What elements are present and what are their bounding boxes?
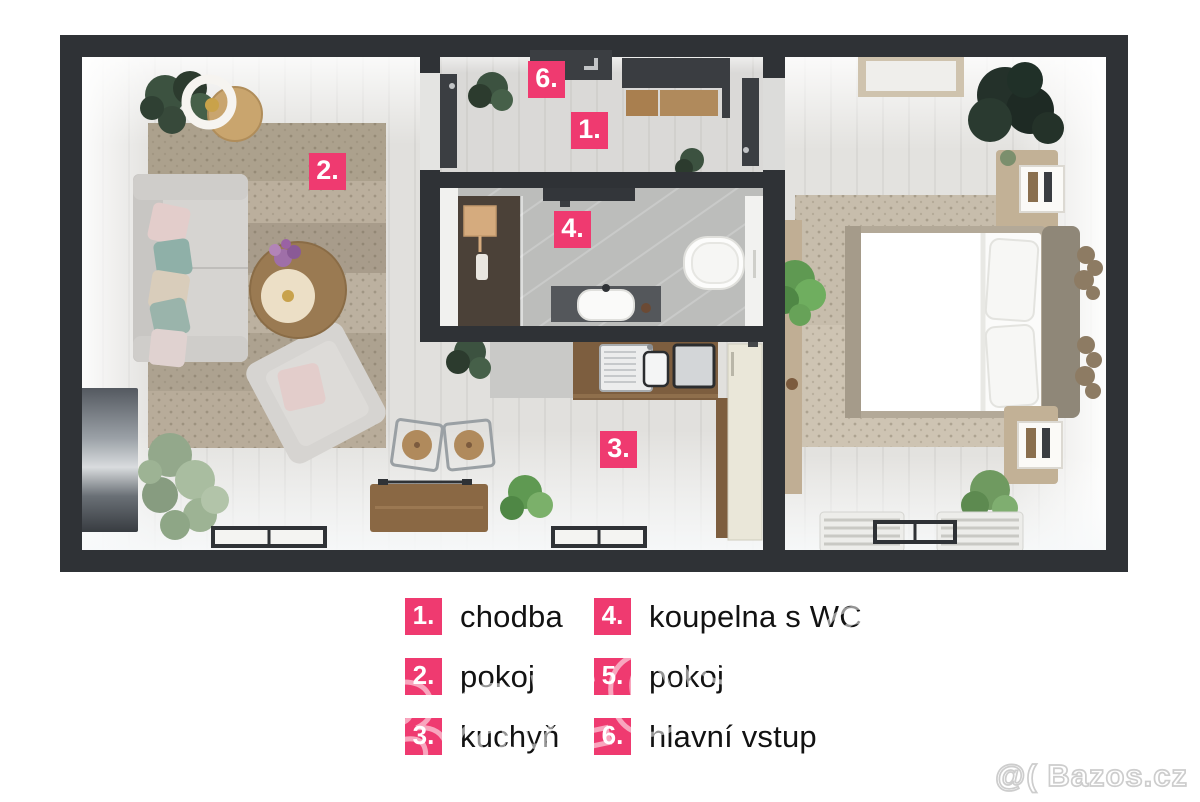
legend-item-koupelna: 4. koupelna s WC bbox=[594, 598, 862, 635]
doorway bbox=[763, 78, 785, 170]
legend-number-badge: 3. bbox=[405, 718, 442, 755]
legend-item-chodba: 1. chodba bbox=[405, 598, 563, 635]
legend-label: pokoj bbox=[649, 659, 724, 695]
ceiling-light bbox=[858, 55, 964, 97]
bathroom-sink bbox=[551, 284, 661, 322]
radiator bbox=[937, 512, 1023, 552]
window bbox=[213, 528, 325, 546]
legend-column-2: 4. koupelna s WC 5. pokoj 6. hlavní vstu… bbox=[594, 598, 862, 755]
watermark-logo: @( Bazos.cz bbox=[995, 758, 1188, 794]
room-marker-bathroom: 4. bbox=[554, 211, 591, 248]
sideboard bbox=[370, 479, 488, 532]
doorway bbox=[420, 73, 440, 170]
legend-number-badge: 4. bbox=[594, 598, 631, 635]
kitchen-counter bbox=[490, 342, 718, 400]
room-marker-kitchen: 3. bbox=[600, 431, 637, 468]
entry-bench bbox=[622, 58, 730, 118]
floorplan-listing-image: 1. 2. 3. 4. 6. 1. chodba 2. pokoj 3. kuc… bbox=[0, 0, 1200, 802]
room-marker-hallway: 1. bbox=[571, 112, 608, 149]
radiator bbox=[820, 512, 904, 552]
legend-item-pokoj-2: 5. pokoj bbox=[594, 658, 862, 695]
shower bbox=[458, 196, 522, 326]
door bbox=[742, 78, 759, 166]
legend-column-1: 1. chodba 2. pokoj 3. kuchyň bbox=[405, 598, 563, 755]
legend-label: koupelna s WC bbox=[649, 599, 862, 635]
room-marker-living-room: 2. bbox=[309, 153, 346, 190]
legend-number-badge: 2. bbox=[405, 658, 442, 695]
legend-item-pokoj: 2. pokoj bbox=[405, 658, 563, 695]
door bbox=[440, 74, 457, 168]
nightstand bbox=[1004, 406, 1062, 484]
legend-item-hlavni-vstup: 6. hlavní vstup bbox=[594, 718, 862, 755]
legend-label: kuchyň bbox=[460, 719, 559, 755]
room-marker-main-entrance: 6. bbox=[528, 61, 565, 98]
sofa bbox=[133, 174, 248, 368]
floorplan-svg bbox=[0, 0, 1200, 575]
legend-item-kuchyn: 3. kuchyň bbox=[405, 718, 563, 755]
window bbox=[553, 528, 645, 546]
legend-number-badge: 6. bbox=[594, 718, 631, 755]
tv-panel bbox=[80, 388, 138, 532]
legend-label: hlavní vstup bbox=[649, 719, 817, 755]
legend-label: pokoj bbox=[460, 659, 535, 695]
nightstand bbox=[996, 150, 1064, 232]
legend-label: chodba bbox=[460, 599, 563, 635]
legend-number-badge: 5. bbox=[594, 658, 631, 695]
bed bbox=[845, 226, 1080, 418]
floorplan bbox=[0, 0, 1200, 575]
legend-number-badge: 1. bbox=[405, 598, 442, 635]
